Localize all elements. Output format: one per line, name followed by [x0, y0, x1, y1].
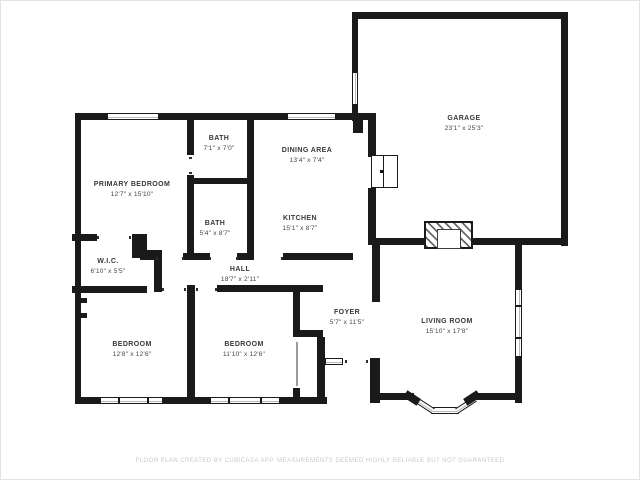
door-jamb-tick: [184, 288, 186, 291]
window-icon: [210, 397, 280, 404]
wall: [353, 119, 363, 133]
wall: [372, 245, 380, 302]
wall: [81, 313, 87, 318]
door-jamb-tick: [209, 257, 211, 260]
wall: [515, 245, 522, 289]
room-dims: 12'8" x 12'6": [112, 351, 151, 360]
room-dims: 13'4" x 7'4": [282, 157, 332, 166]
window-icon: [515, 289, 522, 357]
wall: [187, 285, 195, 403]
door-jamb-tick: [162, 288, 164, 291]
window-mullion: [228, 397, 230, 404]
fireplace-icon: [424, 221, 473, 249]
wall: [352, 12, 568, 19]
wall: [237, 253, 254, 260]
wall: [283, 253, 353, 260]
room-name: FOYER: [330, 308, 364, 319]
wall: [72, 234, 97, 241]
room-dims: 12'7" x 15'10": [94, 191, 170, 200]
room-label-primary-bedroom: PRIMARY BEDROOM 12'7" x 15'10": [94, 180, 170, 200]
room-name: BATH: [199, 219, 230, 230]
room-dims: 15'1" x 8'7": [283, 225, 318, 234]
room-label-bedroom-right: BEDROOM 11'10" x 12'6": [223, 340, 265, 360]
room-name: KITCHEN: [283, 214, 318, 225]
window-icon: [107, 113, 159, 120]
room-dims: 15'10" x 17'8": [421, 328, 472, 337]
room-name: W.I.C.: [91, 257, 126, 268]
wall: [159, 113, 287, 120]
wall: [561, 12, 568, 246]
room-label-kitchen: KITCHEN 15'1" x 8'7": [283, 214, 318, 234]
room-name: BEDROOM: [223, 340, 265, 351]
wall: [75, 113, 81, 404]
room-name: GARAGE: [445, 114, 484, 125]
wall: [187, 113, 194, 155]
room-name: BEDROOM: [112, 340, 151, 351]
door-jamb-tick: [97, 236, 99, 239]
room-dims: 18'7" x 2'11": [221, 276, 259, 285]
sidelight-window-icon: [325, 358, 343, 365]
window-mullion: [515, 305, 522, 307]
room-label-bedroom-left: BEDROOM 12'8" x 12'6": [112, 340, 151, 360]
door-jamb-tick: [281, 257, 283, 260]
wall: [217, 285, 323, 292]
wall: [132, 234, 147, 258]
room-dims: 23'1" x 25'3": [445, 125, 484, 134]
door-jamb-tick: [345, 360, 347, 363]
door-jamb-tick: [215, 288, 217, 291]
wall: [317, 337, 325, 403]
window-mullion: [147, 397, 149, 404]
window-icon: [287, 113, 336, 120]
room-dims: 7'1" x 7'0": [203, 145, 234, 154]
room-name: LIVING ROOM: [421, 317, 472, 328]
wall: [187, 178, 252, 184]
wall: [81, 298, 87, 303]
window-mullion: [515, 337, 522, 339]
firebox: [437, 229, 461, 249]
room-dims: 11'10" x 12'6": [223, 351, 265, 360]
wall: [370, 358, 380, 403]
wall: [187, 175, 194, 260]
wall: [247, 113, 254, 260]
room-label-hall: HALL 18'7" x 2'11": [221, 265, 259, 285]
wall: [72, 286, 147, 293]
wall: [293, 330, 323, 337]
wall: [75, 397, 102, 404]
wall: [368, 113, 376, 157]
room-name: DINING AREA: [282, 146, 332, 157]
room-label-foyer: FOYER 5'7" x 11'5": [330, 308, 364, 328]
door-jamb-tick: [236, 257, 238, 260]
floor-plan: GARAGE 23'1" x 25'3" DINING AREA 13'4" x…: [0, 0, 640, 480]
footer-disclaimer: FLOOR PLAN CREATED BY CUBICASA APP. MEAS…: [0, 458, 640, 464]
wall: [352, 12, 358, 72]
closet-door-icon: [296, 342, 298, 386]
garage-door-icon: [371, 155, 398, 188]
door-jamb-tick: [366, 360, 368, 363]
room-name: HALL: [221, 265, 259, 276]
window-mullion: [260, 397, 262, 404]
wall: [183, 253, 210, 260]
door-jamb-tick: [189, 157, 192, 159]
window-icon: [100, 397, 163, 404]
room-label-dining-area: DINING AREA 13'4" x 7'4": [282, 146, 332, 166]
room-label-wic: W.I.C. 6'10" x 5'5": [91, 257, 126, 277]
door-jamb-tick: [196, 288, 198, 291]
room-label-living-room: LIVING ROOM 15'10" x 17'8": [421, 317, 472, 337]
door-jamb-tick: [189, 172, 192, 174]
door-jamb-tick: [156, 257, 158, 260]
window-mullion: [118, 397, 120, 404]
door-jamb-tick: [129, 236, 131, 239]
wall: [368, 188, 376, 240]
room-name: BATH: [203, 134, 234, 145]
room-dims: 5'4" x 8'7": [199, 230, 230, 239]
room-label-bath-upper: BATH 7'1" x 7'0": [203, 134, 234, 154]
room-label-bath-lower: BATH 5'4" x 8'7": [199, 219, 230, 239]
wall: [293, 388, 300, 397]
room-dims: 6'10" x 5'5": [91, 268, 126, 277]
room-name: PRIMARY BEDROOM: [94, 180, 170, 191]
window-icon: [352, 72, 358, 105]
door-jamb-tick: [182, 257, 184, 260]
room-dims: 5'7" x 11'5": [330, 319, 364, 328]
room-label-garage: GARAGE 23'1" x 25'3": [445, 114, 484, 134]
